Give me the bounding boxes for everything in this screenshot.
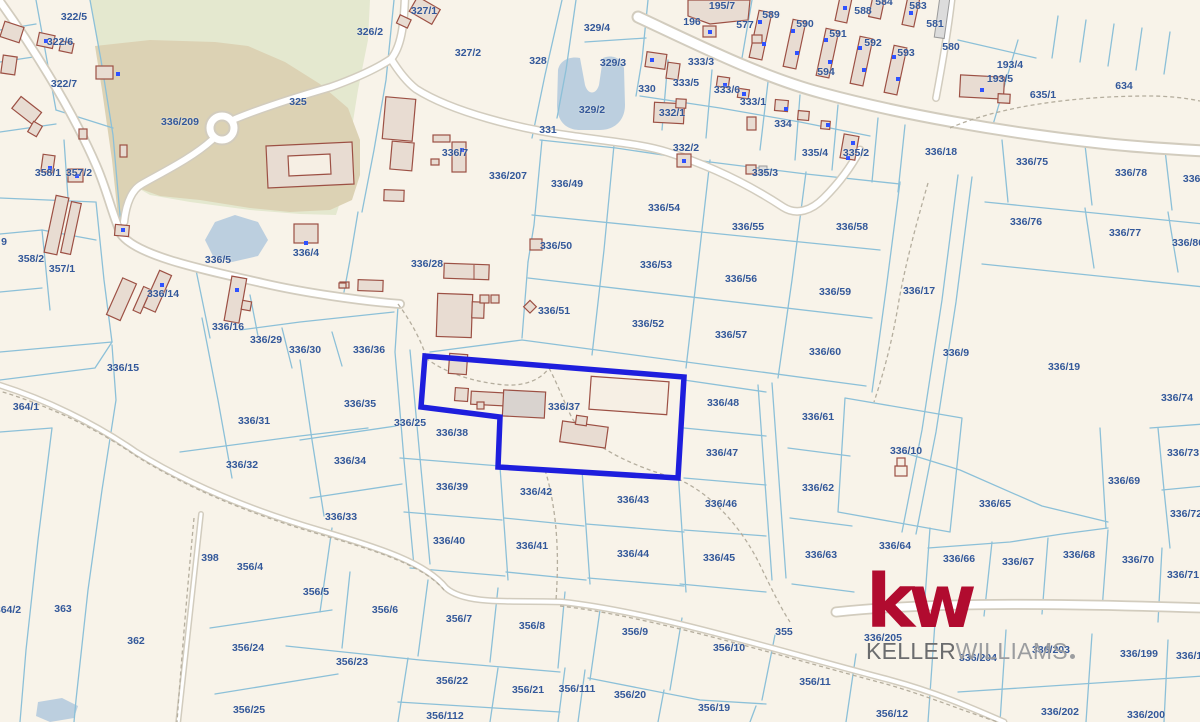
- pond-small: [205, 215, 268, 262]
- keller-williams-logo: kw KELLERWILLIAMS: [866, 574, 1096, 665]
- terrain-layer: [36, 0, 625, 722]
- pond-bottom-left: [36, 698, 78, 722]
- kw-monogram: kw: [866, 574, 1096, 632]
- map-viewport: 322/5322/6322/7336/209325326/2327/1327/2…: [0, 0, 1200, 722]
- well-building-icon: [895, 466, 907, 476]
- kw-wordmark-williams: WILLIAMS: [956, 638, 1068, 664]
- kw-wordmark-keller: KELLER: [866, 638, 956, 664]
- registered-mark-icon: [1070, 654, 1075, 659]
- pond-u-shape: [557, 56, 625, 130]
- kw-wordmark: KELLERWILLIAMS: [866, 638, 1096, 665]
